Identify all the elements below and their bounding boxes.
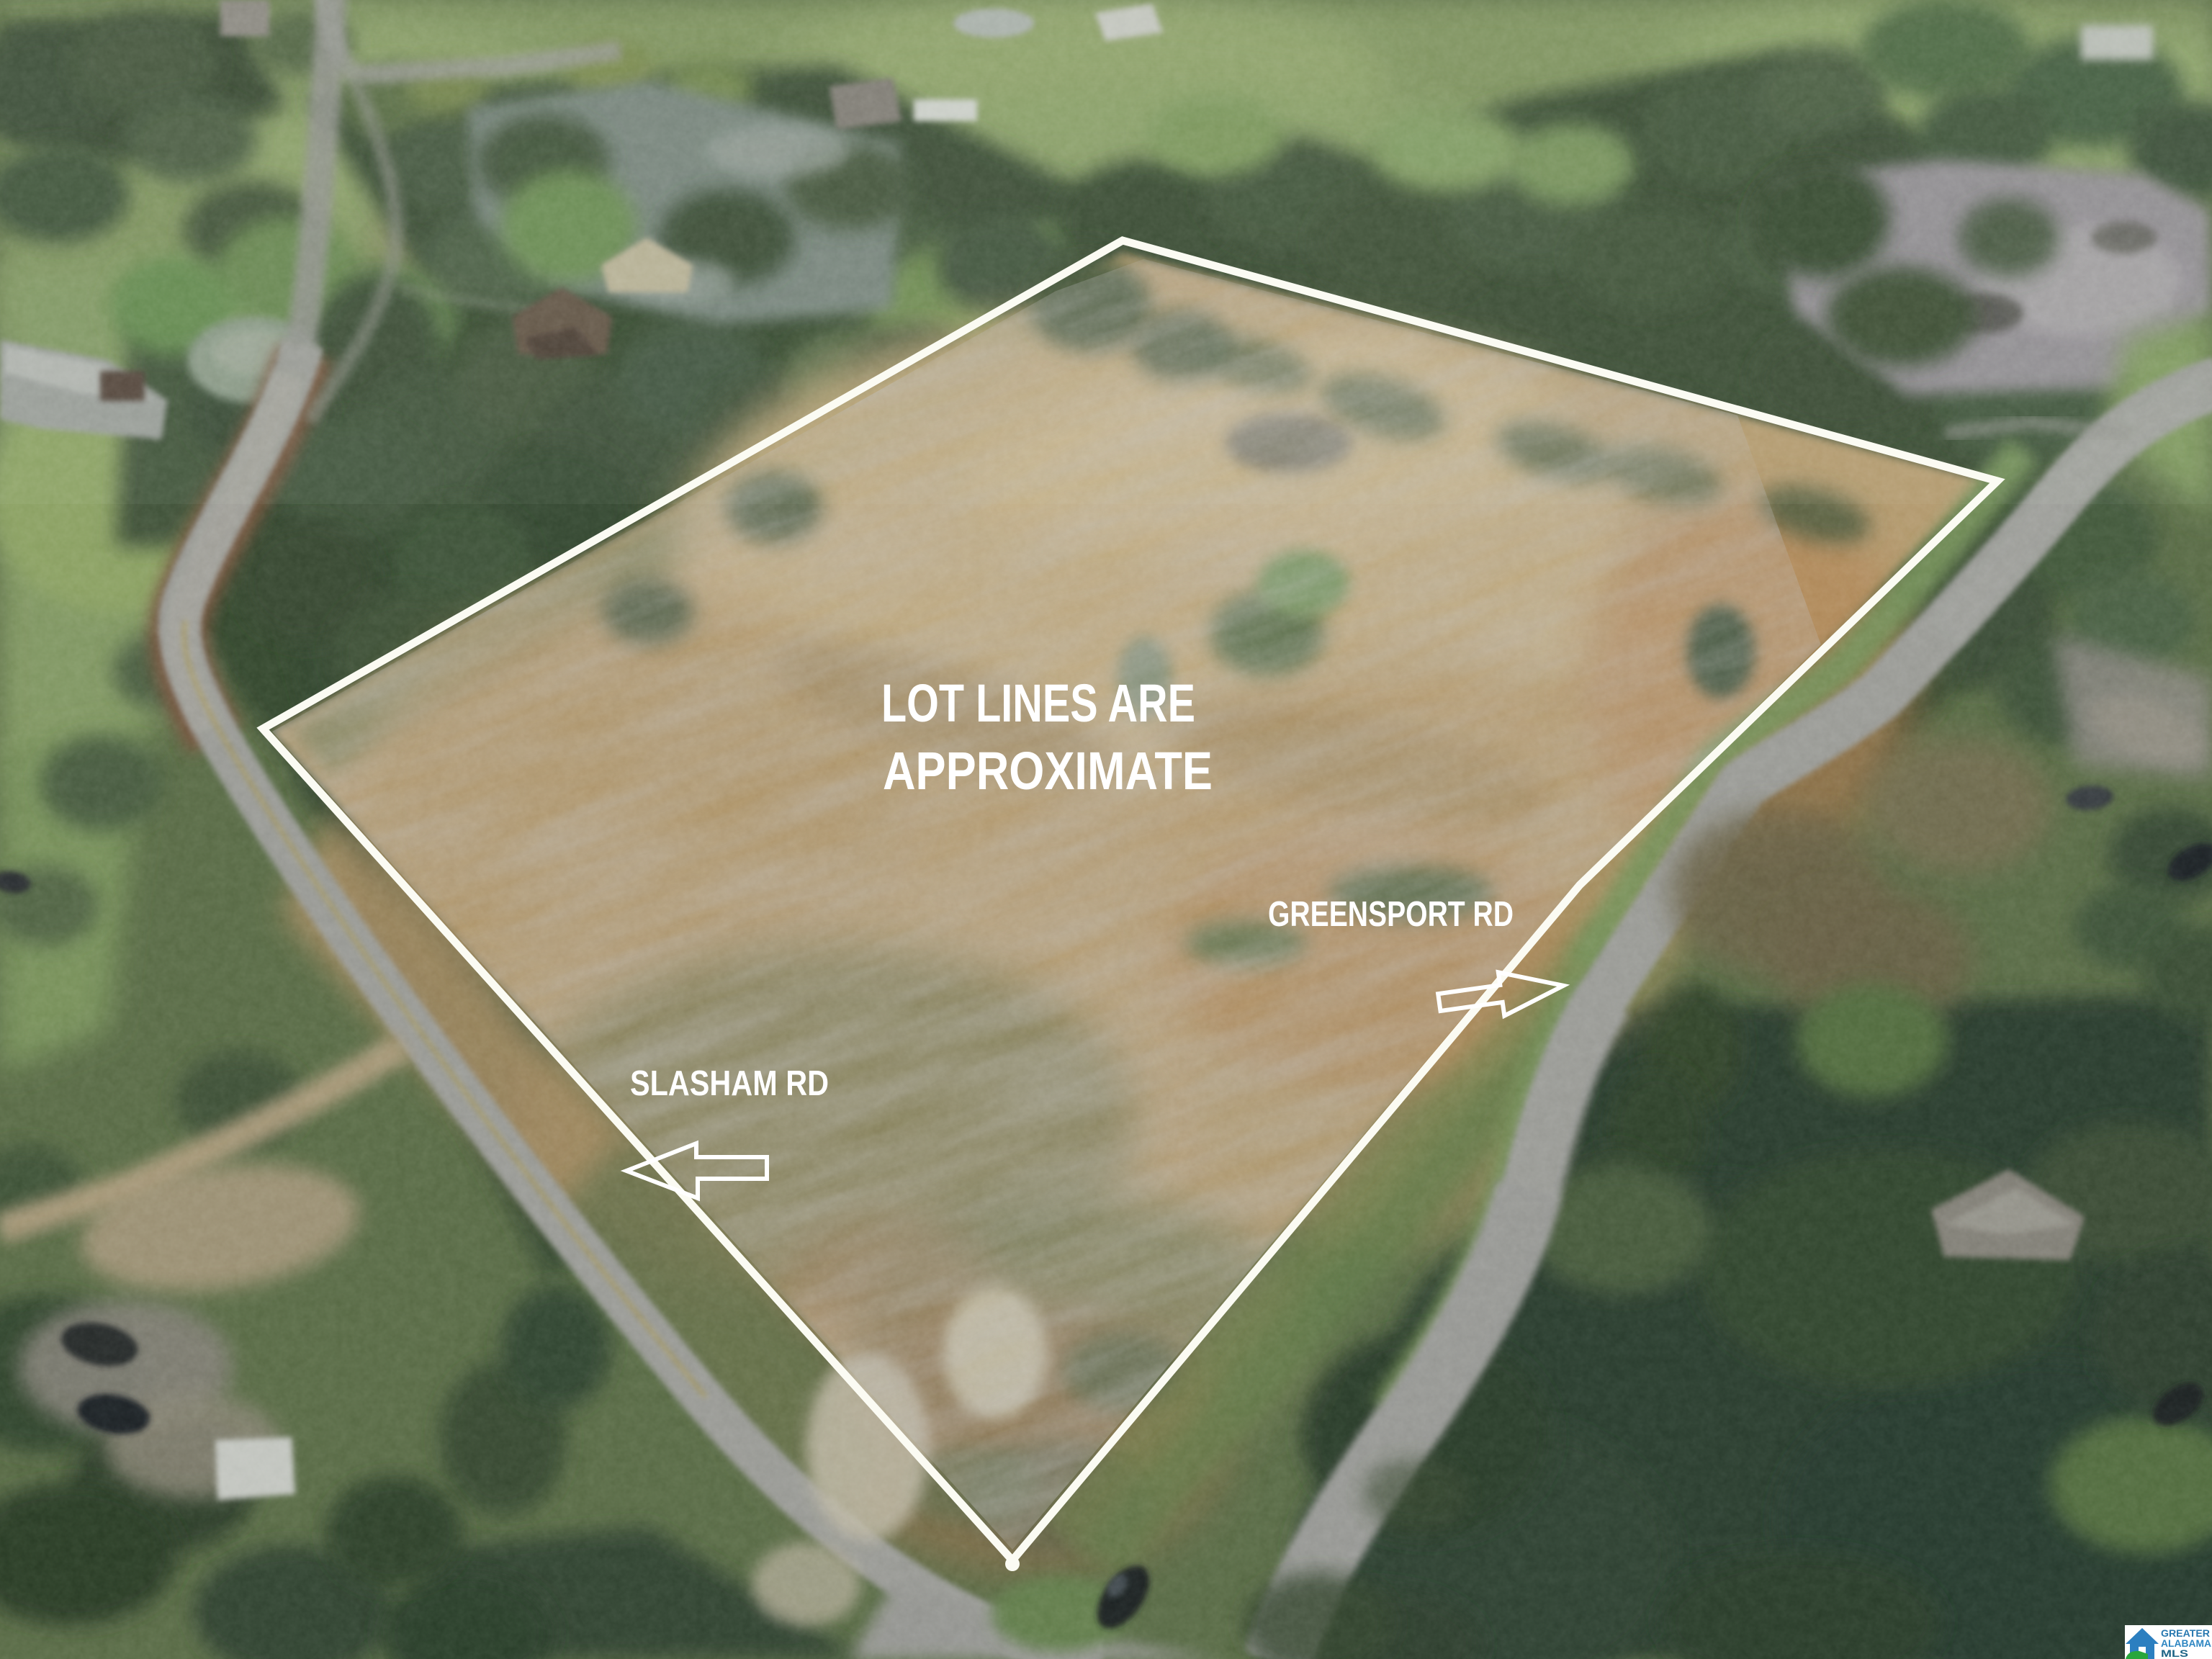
svg-text:GREATER: GREATER	[2161, 1628, 2210, 1639]
svg-text:LOT LINES ARE: LOT LINES ARE	[881, 673, 1195, 733]
svg-text:MLS: MLS	[2161, 1648, 2188, 1659]
svg-text:APPROXIMATE: APPROXIMATE	[883, 741, 1213, 801]
svg-text:GREENSPORT RD: GREENSPORT RD	[1268, 895, 1514, 934]
svg-text:ALABAMA: ALABAMA	[2161, 1638, 2211, 1649]
svg-text:SLASHAM RD: SLASHAM RD	[630, 1064, 829, 1103]
